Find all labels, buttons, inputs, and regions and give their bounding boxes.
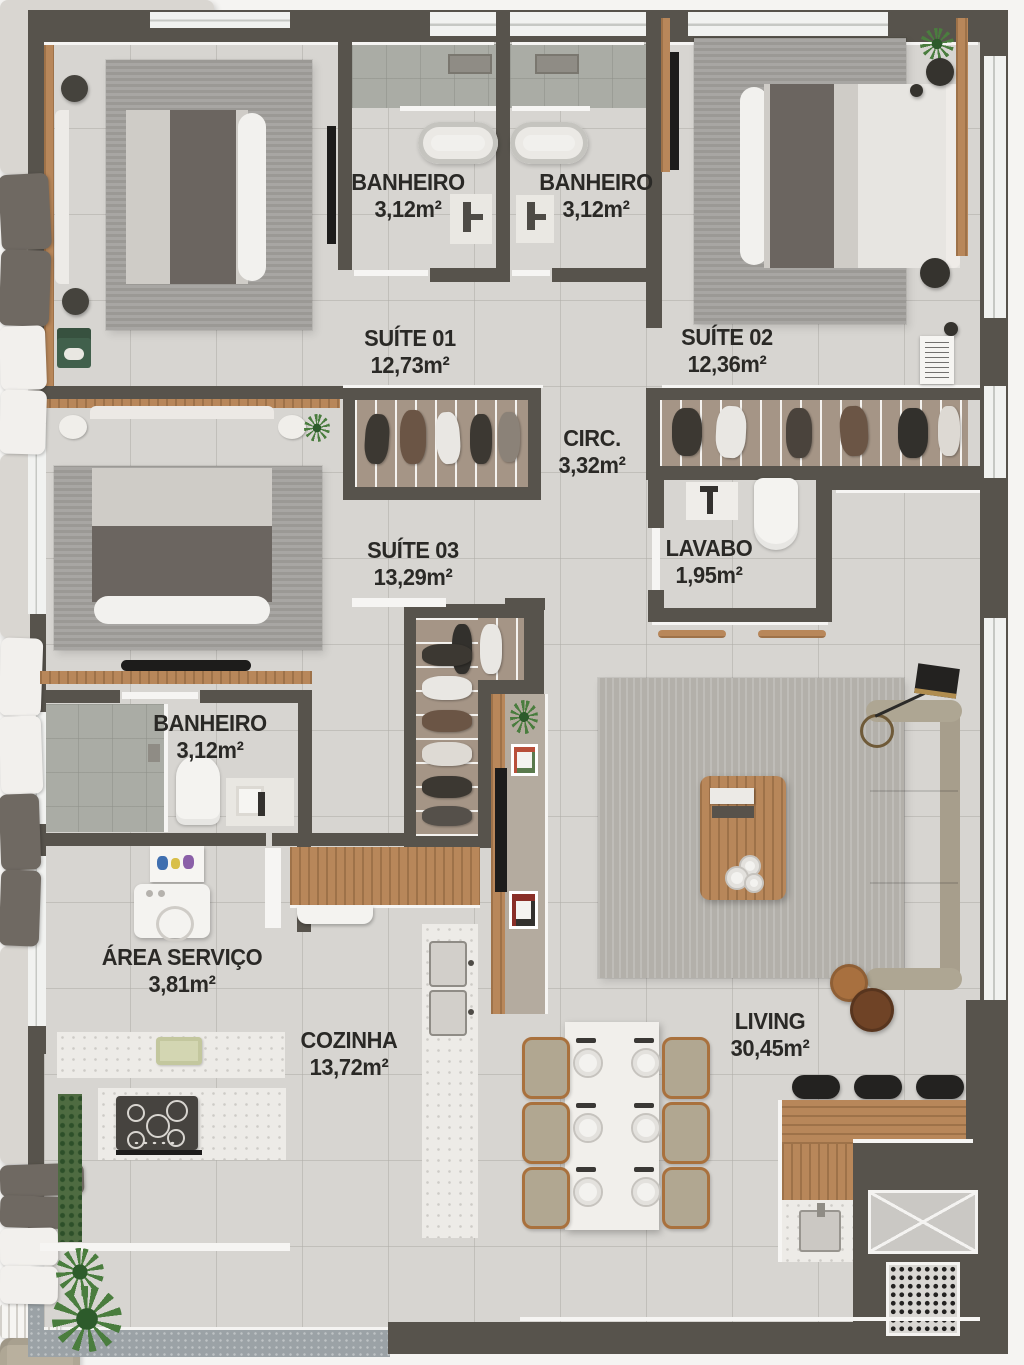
cutlery xyxy=(576,1167,596,1172)
wall-hall-stub xyxy=(646,288,662,328)
detergent-yellow xyxy=(171,858,180,869)
plate xyxy=(631,1113,661,1143)
clothes xyxy=(715,405,748,458)
sofa-back xyxy=(940,704,960,986)
faucet xyxy=(258,792,265,816)
clothes xyxy=(422,644,472,666)
sofa-seam xyxy=(870,882,958,884)
counter-sink xyxy=(429,941,467,987)
sofa-seam xyxy=(870,790,958,792)
stool xyxy=(62,288,89,315)
plate xyxy=(631,1177,661,1207)
shower-mixer xyxy=(535,54,579,74)
door-banheiro3 xyxy=(122,692,198,699)
door-banheiro2 xyxy=(512,270,550,276)
clothes xyxy=(400,410,426,464)
planter-strip xyxy=(58,1094,82,1242)
room-label-banheiro-3: BANHEIRO 3,12m² xyxy=(153,710,267,764)
wall-lavabo-left-a xyxy=(648,478,664,528)
clothes xyxy=(898,408,928,458)
toilet-banheiro3 xyxy=(176,755,220,825)
counter-sink xyxy=(429,990,467,1036)
sink-handle xyxy=(468,1009,474,1015)
sofa-armrest xyxy=(866,968,962,990)
shower-glass xyxy=(512,106,590,111)
plate xyxy=(573,1113,603,1143)
room-label-suite-03: SUÍTE 03 13,29m² xyxy=(367,537,459,591)
detergent-purple xyxy=(183,855,194,869)
room-name: CIRC. xyxy=(559,425,626,452)
blanket xyxy=(170,110,236,284)
plant-terrace xyxy=(52,1286,122,1352)
blanket xyxy=(770,84,834,268)
tv-wall-panel xyxy=(505,694,545,1014)
wall-right-thick xyxy=(966,1000,1008,1145)
clothes xyxy=(422,676,472,700)
door-banheiro1 xyxy=(354,270,428,276)
wall-bath-divider-2 xyxy=(496,10,510,270)
room-name: BANHEIRO xyxy=(539,169,653,196)
cutlery xyxy=(634,1167,654,1172)
picture-frame xyxy=(511,744,538,776)
headboard xyxy=(55,110,69,284)
cutlery xyxy=(634,1103,654,1108)
room-label-cozinha: COZINHA 13,72m² xyxy=(301,1027,398,1081)
tv-suite1 xyxy=(327,126,336,244)
wall-banheiro3-right xyxy=(298,690,312,846)
wall-tv-top-v xyxy=(524,598,544,698)
burner xyxy=(127,1104,145,1122)
door-closet3 xyxy=(352,598,446,607)
pillow xyxy=(0,1265,58,1304)
clothes xyxy=(672,408,702,456)
wall-lavabo-bottom xyxy=(648,608,832,622)
nightstand xyxy=(59,415,87,439)
bed-foot-roll xyxy=(94,596,270,624)
cooktop-knobs xyxy=(132,1140,180,1146)
bathtub xyxy=(510,122,588,164)
clothes xyxy=(498,412,520,462)
wall-lavabo-right xyxy=(816,478,832,622)
bar-counter-side xyxy=(782,1144,854,1200)
wall-lavabo-ext xyxy=(832,478,980,490)
clothes xyxy=(480,624,502,674)
room-label-circ: CIRC. 3,32m² xyxy=(559,425,626,479)
dining-chair xyxy=(662,1167,710,1229)
floor-plan: BANHEIRO 3,12m² BANHEIRO 3,12m² SUÍTE 01… xyxy=(0,0,1024,1365)
burner xyxy=(166,1100,188,1122)
shower-glass xyxy=(400,106,496,111)
armchair-back xyxy=(758,630,826,638)
bench-detail xyxy=(64,348,84,360)
bar-stool xyxy=(916,1075,964,1099)
headboard xyxy=(90,406,274,419)
pillow xyxy=(0,325,47,391)
towel xyxy=(156,1037,202,1065)
door-lavabo xyxy=(652,528,660,590)
room-name: BANHEIRO xyxy=(351,169,465,196)
clothes xyxy=(839,405,870,456)
pillow xyxy=(0,1195,67,1229)
room-area: 3,81m² xyxy=(102,971,263,998)
room-name: SUÍTE 01 xyxy=(364,325,456,352)
stool-small xyxy=(944,322,958,336)
room-area: 1,95m² xyxy=(666,562,753,589)
room-label-suite-02: SUÍTE 02 12,36m² xyxy=(681,324,773,378)
baseboard xyxy=(352,42,494,45)
shaft-box xyxy=(868,1190,978,1254)
washer-door xyxy=(156,906,194,942)
closet1-frame-top xyxy=(343,388,541,400)
dining-chair xyxy=(662,1102,710,1164)
closet2-frame-top xyxy=(646,388,980,400)
clothes xyxy=(786,408,812,458)
window-top-suite1 xyxy=(150,12,290,28)
pillow xyxy=(0,793,41,870)
bathtub xyxy=(418,122,498,164)
room-name: SUÍTE 03 xyxy=(367,537,459,564)
room-area: 12,36m² xyxy=(681,351,773,378)
sink-handle xyxy=(468,960,474,966)
room-label-living: LIVING 30,45m² xyxy=(731,1008,810,1062)
closet1-frame-left xyxy=(343,388,355,500)
wall-bath-bottom-a xyxy=(430,268,510,282)
dining-chair xyxy=(522,1102,570,1164)
window-right-living xyxy=(984,618,1006,1002)
cutlery xyxy=(634,1038,654,1043)
kitchen-counter-wood xyxy=(290,847,480,907)
plate xyxy=(631,1048,661,1078)
blanket xyxy=(92,526,272,602)
floor-lamp-base xyxy=(860,714,894,748)
stool-small xyxy=(910,84,923,97)
room-area: 13,29m² xyxy=(367,564,459,591)
clothes xyxy=(938,406,960,456)
wall-suite1-bottom xyxy=(28,386,348,399)
tv-wall-edge xyxy=(545,694,548,1014)
faucet-handle xyxy=(469,214,483,220)
wall-bath-divider-1 xyxy=(338,10,352,270)
closet1-frame-bottom xyxy=(343,487,541,500)
pillow xyxy=(0,869,41,946)
pillow xyxy=(0,715,43,794)
dining-chair xyxy=(522,1037,570,1099)
room-area: 3,12m² xyxy=(153,737,267,764)
clothes xyxy=(422,710,472,732)
picture-frame xyxy=(509,891,538,929)
room-name: LAVABO xyxy=(666,535,753,562)
room-area: 3,12m² xyxy=(351,196,465,223)
shower-floor-banheiro3 xyxy=(44,704,164,832)
room-name: BANHEIRO xyxy=(153,710,267,737)
tv-living xyxy=(495,768,507,892)
pillow xyxy=(0,637,43,716)
stool xyxy=(920,258,950,288)
cutlery xyxy=(576,1103,596,1108)
clothes xyxy=(422,776,472,798)
washer-knob xyxy=(158,890,165,897)
wall-suite3-bottom-a xyxy=(28,690,120,703)
wood-strip-suite2-right xyxy=(956,18,968,256)
room-area: 13,72m² xyxy=(301,1054,398,1081)
stool xyxy=(926,58,954,86)
room-area: 3,12m² xyxy=(539,196,653,223)
dining-chair xyxy=(662,1037,710,1099)
wall-bath-bottom-b xyxy=(552,268,662,282)
clothes xyxy=(422,806,472,826)
stool xyxy=(61,75,88,102)
vent-grate xyxy=(886,1262,960,1336)
room-area: 30,45m² xyxy=(731,1035,810,1062)
bar-faucet xyxy=(817,1203,825,1217)
room-name: LIVING xyxy=(731,1008,810,1035)
books xyxy=(712,806,754,818)
dining-chair xyxy=(522,1167,570,1229)
door-area-servico xyxy=(265,848,281,928)
clothes xyxy=(422,742,472,766)
bed-foot-roll xyxy=(238,113,266,281)
room-label-banheiro-2: BANHEIRO 3,12m² xyxy=(539,169,653,223)
shower-mixer xyxy=(448,54,492,74)
glass-rail-bottom xyxy=(520,1317,980,1321)
plant-tv-wall xyxy=(510,700,538,734)
bar-counter-top xyxy=(782,1100,972,1144)
armchair-back xyxy=(658,630,726,638)
baseboard xyxy=(44,42,338,45)
wall-bath-divider-3 xyxy=(646,10,662,288)
window-right-suite2 xyxy=(984,56,1006,318)
pillow xyxy=(0,173,52,252)
floor-lamp-shade xyxy=(914,663,960,699)
detergent-blue xyxy=(157,856,168,870)
pillow xyxy=(0,249,51,327)
wall-banheiro3-bottom-a xyxy=(28,833,266,846)
plate xyxy=(573,1177,603,1207)
toilet-lavabo xyxy=(754,478,798,550)
wall-suite3-bottom-b xyxy=(200,690,312,703)
nightstand xyxy=(278,415,306,439)
lavabo-ext-line xyxy=(836,490,980,493)
room-name: SUÍTE 02 xyxy=(681,324,773,351)
island-shadow xyxy=(116,1150,202,1155)
faucet xyxy=(707,490,713,514)
plant-suite2 xyxy=(920,28,954,60)
console-suite3 xyxy=(40,671,312,684)
mattress xyxy=(858,84,960,268)
cutlery xyxy=(576,1038,596,1043)
clothes xyxy=(470,414,492,464)
lavabo-bottom-line xyxy=(652,622,828,625)
room-label-suite-01: SUÍTE 01 12,73m² xyxy=(364,325,456,379)
room-label-banheiro-1: BANHEIRO 3,12m² xyxy=(351,169,465,223)
shaft-zone-line xyxy=(853,1139,973,1143)
bar-stool xyxy=(792,1075,840,1099)
room-name: COZINHA xyxy=(301,1027,398,1054)
room-label-area-servico: ÁREA SERVIÇO 3,81m² xyxy=(102,944,263,998)
poster-art xyxy=(925,342,949,378)
plant-suite3 xyxy=(304,414,330,442)
duvet xyxy=(92,468,272,532)
tv-suite3 xyxy=(121,660,251,671)
window-top-banheiros xyxy=(430,12,646,36)
room-area: 12,73m² xyxy=(364,352,456,379)
wood-strip-suite2-left xyxy=(661,18,670,172)
tv-suite2 xyxy=(670,52,679,170)
plate xyxy=(573,1048,603,1078)
books xyxy=(710,788,754,804)
window-top-suite2 xyxy=(688,12,888,36)
closet1-frame-right xyxy=(528,388,541,500)
cup xyxy=(744,873,764,893)
washer-knob xyxy=(146,890,153,897)
kitchen-sink-front xyxy=(297,906,373,924)
pillow xyxy=(0,389,47,455)
bar-stool xyxy=(854,1075,902,1099)
window-right-circ xyxy=(984,386,1006,478)
room-label-lavabo: LAVABO 1,95m² xyxy=(666,535,753,589)
room-area: 3,32m² xyxy=(559,452,626,479)
baseboard xyxy=(512,42,644,45)
side-table xyxy=(850,988,894,1032)
room-name: ÁREA SERVIÇO xyxy=(102,944,263,971)
